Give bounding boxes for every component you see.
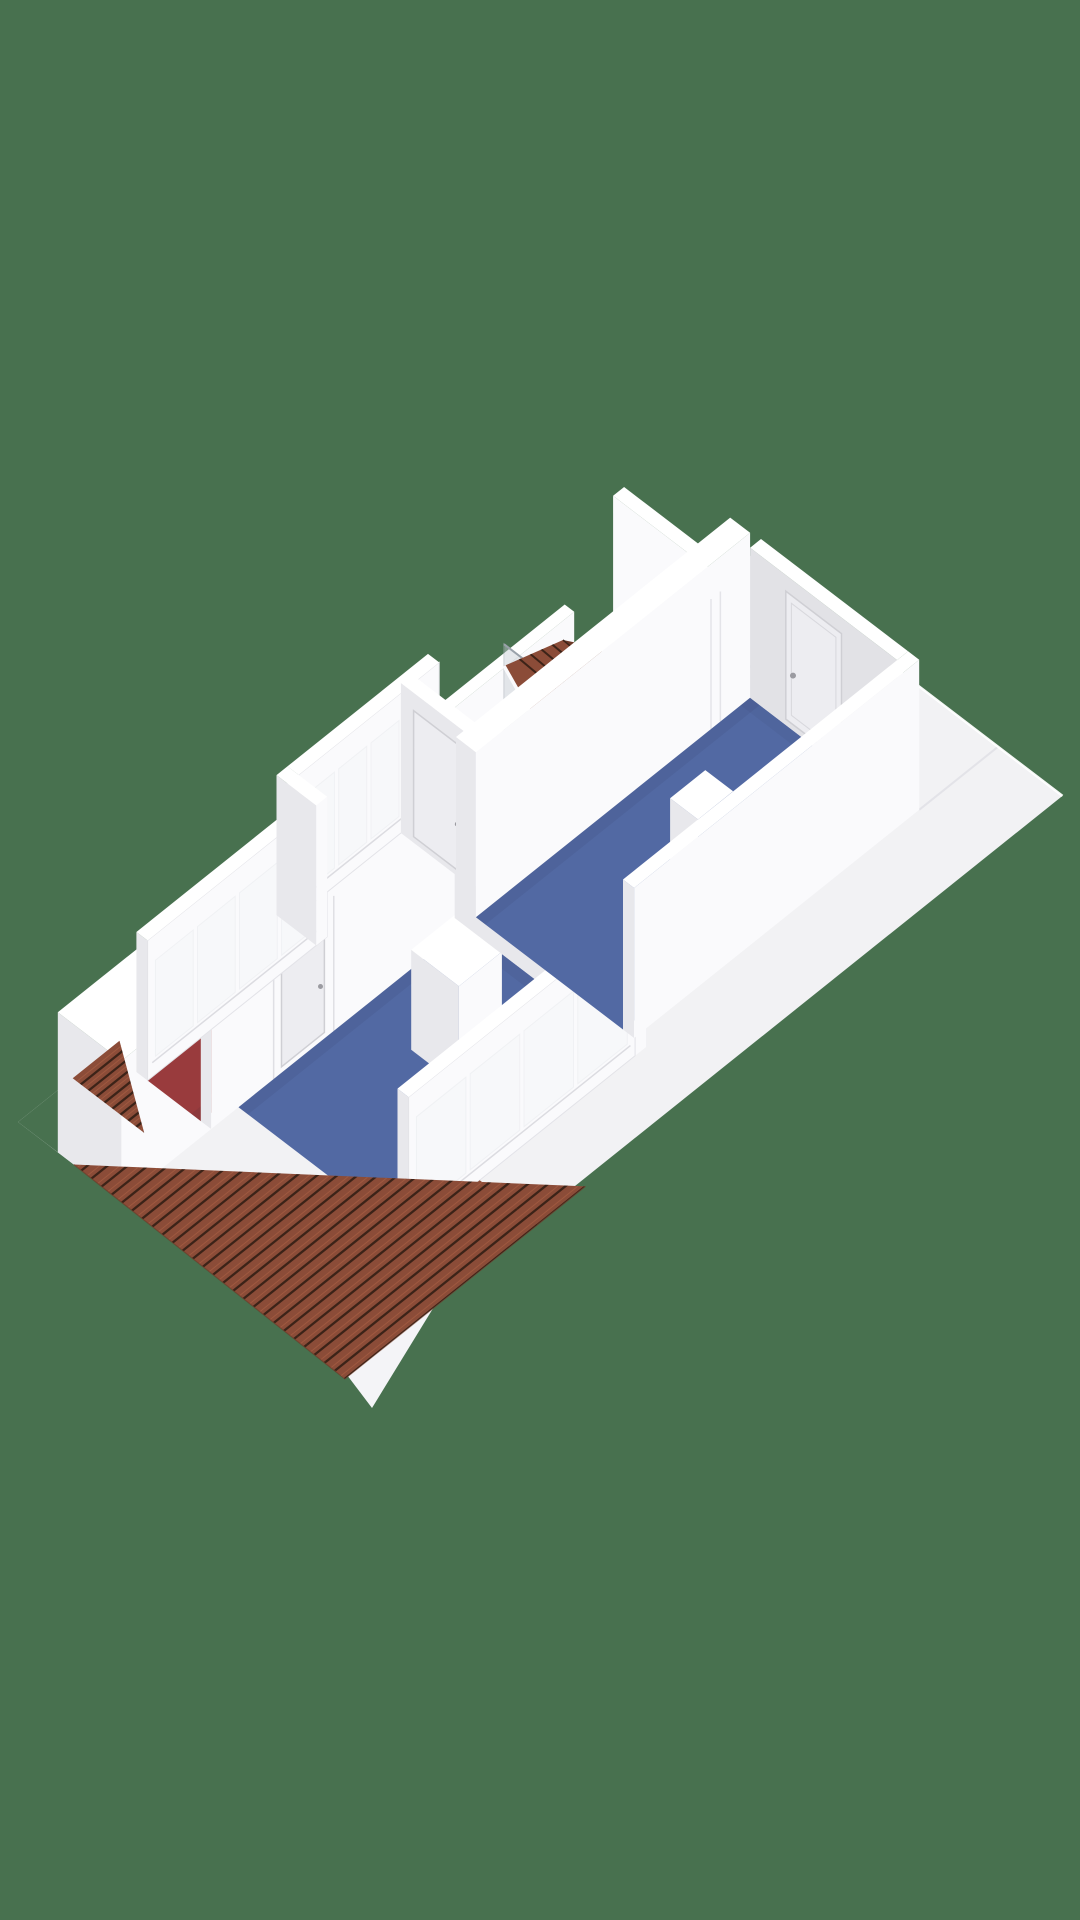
- floorplan-3d-canvas[interactable]: [0, 0, 1080, 1920]
- jog-wall: [316, 797, 327, 946]
- window-band-left: [136, 932, 147, 1081]
- floorplan-viewport: [0, 0, 1080, 1920]
- partition-wall: [456, 737, 476, 917]
- wall-end: [623, 880, 634, 1039]
- jog-wall: [277, 766, 328, 945]
- door-handle: [318, 984, 323, 989]
- door-handle: [790, 673, 796, 679]
